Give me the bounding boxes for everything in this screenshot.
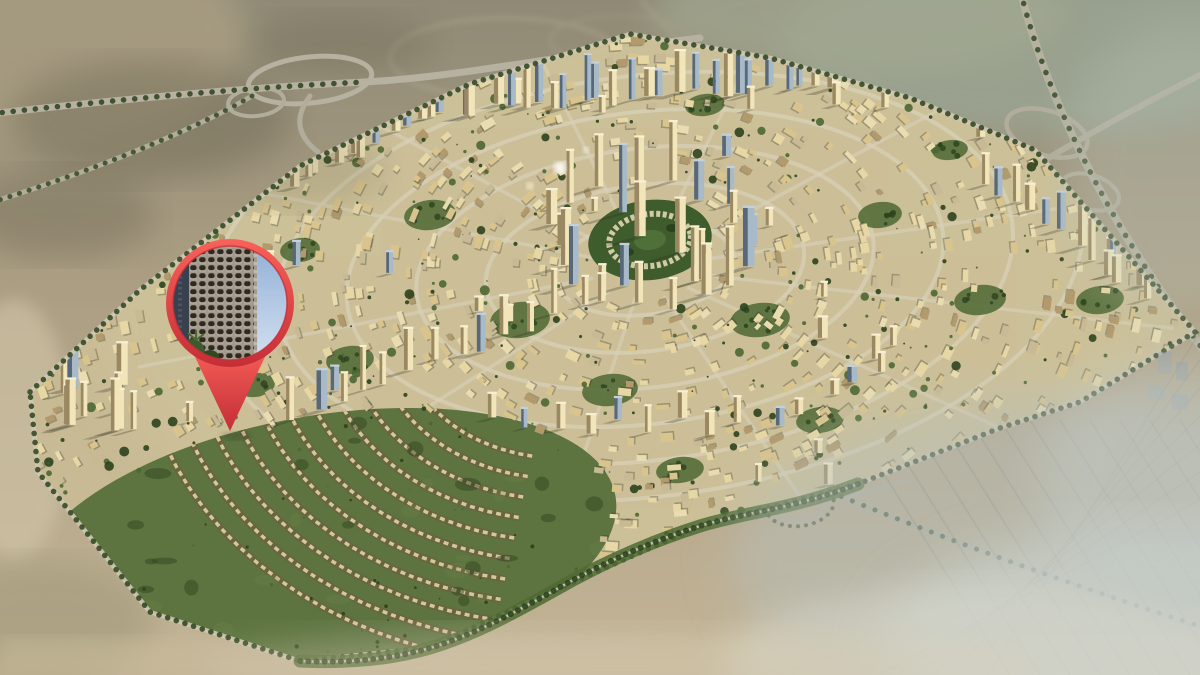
scene-svg: [0, 0, 1200, 675]
aerial-masterplan-image: [0, 0, 1200, 675]
pin-shadow: [220, 432, 252, 441]
